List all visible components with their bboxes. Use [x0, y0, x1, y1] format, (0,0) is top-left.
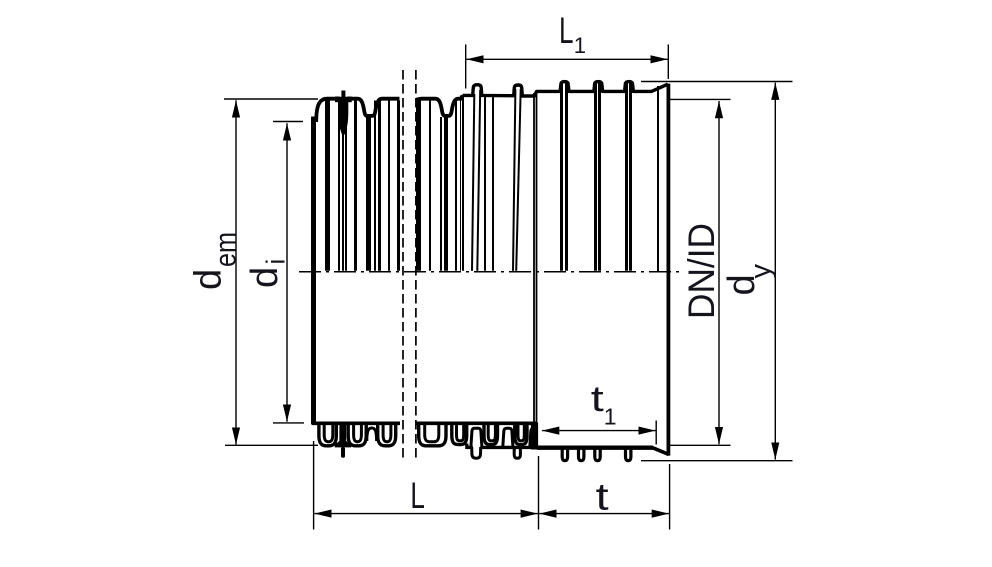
svg-text:L: L: [559, 10, 574, 51]
svg-text:d: d: [188, 269, 230, 290]
svg-text:i: i: [261, 259, 291, 265]
svg-text:em: em: [210, 232, 243, 267]
svg-text:d: d: [244, 267, 286, 288]
svg-text:DN/ID: DN/ID: [681, 223, 722, 319]
svg-text:1: 1: [574, 33, 586, 58]
svg-text:L: L: [410, 475, 425, 516]
svg-text:1: 1: [604, 404, 617, 430]
svg-text:t: t: [591, 378, 604, 419]
svg-text:t: t: [596, 476, 610, 518]
svg-text:y: y: [745, 264, 777, 279]
